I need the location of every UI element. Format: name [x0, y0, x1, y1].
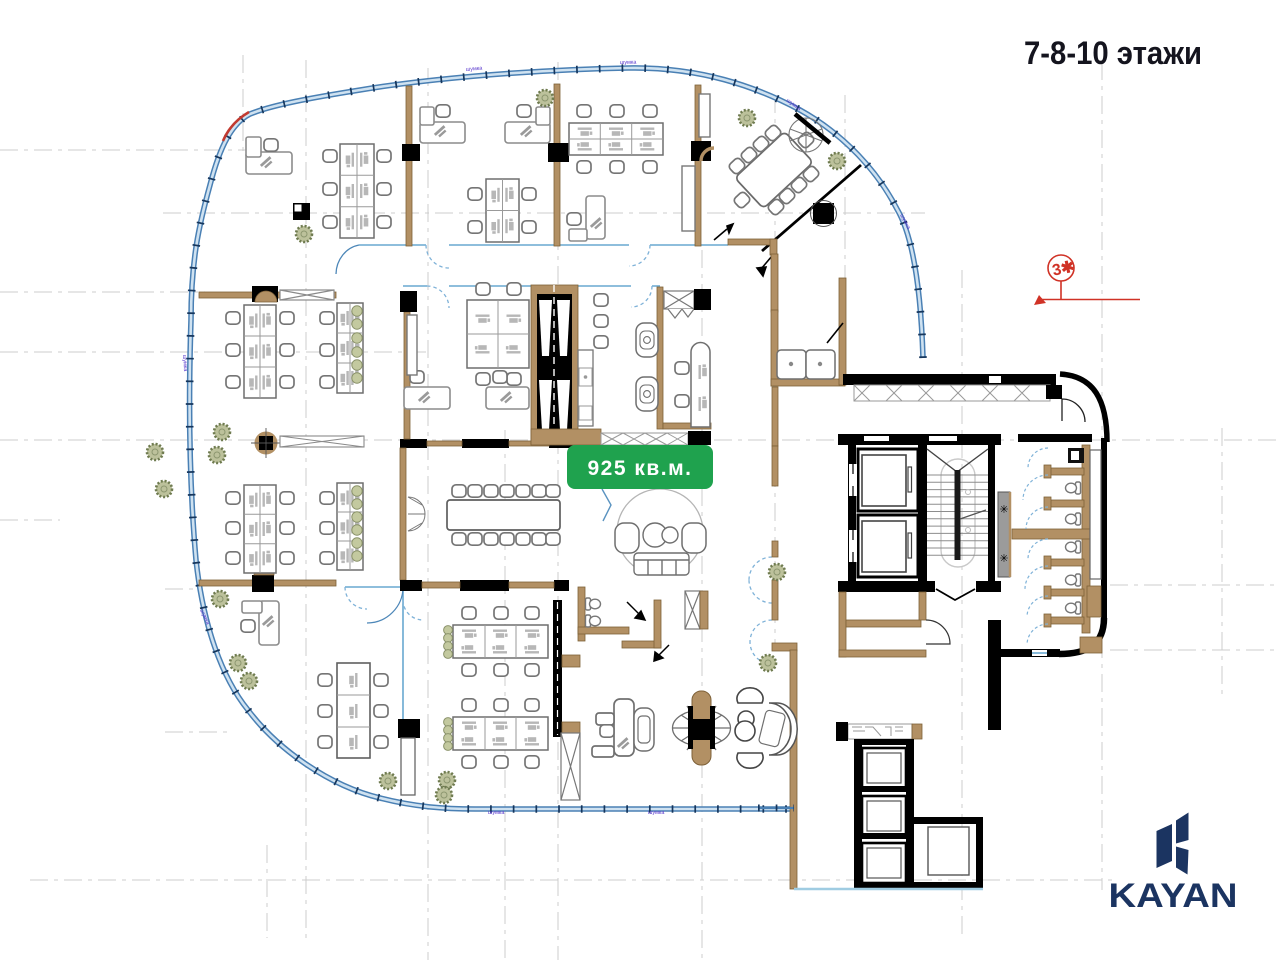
svg-text:шумка: шумка [488, 810, 505, 816]
svg-text:7-8-10 этажи: 7-8-10 этажи [1024, 35, 1202, 71]
svg-text:925 кв.м.: 925 кв.м. [588, 457, 693, 480]
svg-text:KAYAN: KAYAN [1109, 877, 1238, 915]
svg-text:шумка: шумка [648, 810, 665, 816]
svg-text:шумка: шумка [620, 60, 638, 66]
svg-text:✳: ✳ [999, 504, 1008, 516]
svg-text:шумка: шумка [181, 355, 188, 373]
svg-text:✳: ✳ [999, 553, 1008, 565]
